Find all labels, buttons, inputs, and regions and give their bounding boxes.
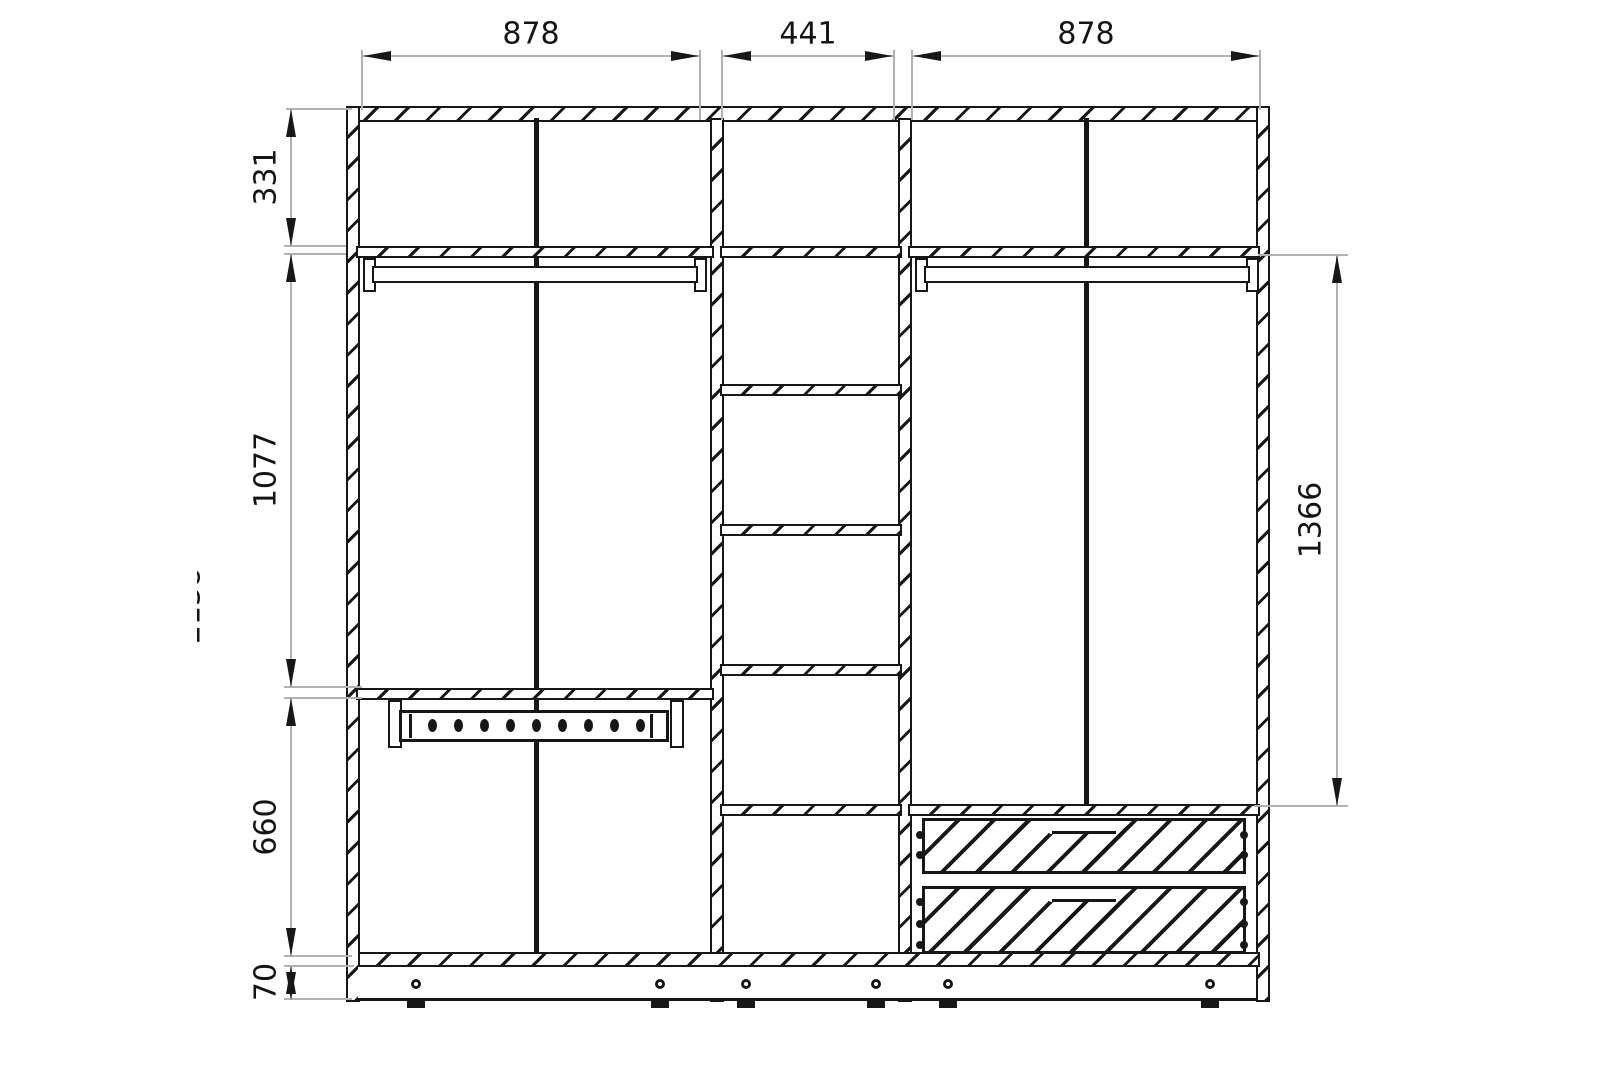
drawer-slide-screw [916,898,924,906]
drawer-slide-screw [1240,898,1248,906]
plinth-foot [1201,1000,1219,1008]
middle-shelf-5 [720,804,902,816]
dimension-line-top-right [912,55,1260,57]
right-section-drawer-top-shelf [908,804,1260,816]
bottom-panel [358,952,1260,967]
plinth-screw [871,979,881,989]
drawer-slide-screw [1240,831,1248,839]
plinth-foot [737,1000,755,1008]
dim-arrow [286,254,296,282]
plinth-screw [741,979,751,989]
dim-label-660: 660 [249,798,284,855]
trouser-rack-hole [636,719,645,732]
drawer-slide-screw [916,941,924,949]
middle-shelf-3 [720,524,902,536]
dim-arrow [723,51,751,61]
plinth-foot [651,1000,669,1008]
extension-line [893,50,895,120]
plinth-foot [939,1000,957,1008]
top-panel [346,106,1270,122]
extension-line [1259,50,1261,110]
right-clothes-rail [924,266,1250,283]
right-section-top-shelf [908,246,1260,258]
left-section-mid-shelf [356,688,714,700]
trouser-rack-hole [610,719,619,732]
middle-shelf-1 [720,246,902,258]
left-section-top-shelf [356,246,714,258]
dim-arrow [1332,778,1342,806]
plinth-screw [411,979,421,989]
dim-label-width-left: 878 [502,17,559,52]
extension-line [699,50,701,120]
trouser-rack-hole [428,719,437,732]
right-section-center-divider [1084,118,1089,806]
drawer-slide-screw [1240,920,1248,928]
plinth-screw [655,979,665,989]
trouser-rack-hole [506,719,515,732]
trouser-rack-endcap [650,714,653,738]
trouser-rack-hole [480,719,489,732]
dimension-line-1366 [1336,254,1338,807]
dimension-line-top-left [362,55,700,57]
dim-arrow [865,51,893,61]
plinth-screw [1205,979,1215,989]
dim-arrow [1231,51,1259,61]
drawer-slide-screw [916,920,924,928]
dim-label-width-right: 878 [1057,17,1114,52]
dimension-line-1077 [290,253,292,688]
drawer-1-handle-line [1052,831,1116,834]
dim-arrow [1332,255,1342,283]
middle-shelf-4 [720,664,902,676]
plinth-front [358,967,1256,1001]
middle-shelf-2 [720,384,902,396]
dim-arrow [286,928,296,956]
drawer-slide-screw [916,851,924,859]
left-clothes-rail [372,266,698,283]
dimension-line-660 [290,697,292,957]
dim-arrow [671,51,699,61]
trouser-rack-endcap [409,714,412,738]
wardrobe-technical-drawing: 878 441 878 331 1077 660 70 2138 1366 [0,0,1600,1084]
right-side-wall [1256,106,1270,1002]
plinth-foot [867,1000,885,1008]
dim-label-1366: 1366 [1294,482,1329,558]
trouser-rack-hole [584,719,593,732]
dim-arrow [286,972,296,1000]
drawer-slide-screw [916,831,924,839]
left-section-center-divider [534,118,539,952]
trouser-rack-hole [558,719,567,732]
dim-arrow [363,51,391,61]
drawer-slide-screw [1240,851,1248,859]
dim-arrow [286,109,296,137]
dim-label-width-middle: 441 [779,17,836,52]
dim-label-70: 70 [249,963,284,1001]
trouser-rack-bracket [670,700,684,748]
dim-label-1077: 1077 [249,432,284,508]
dim-arrow [286,659,296,687]
plinth-screw [943,979,953,989]
trouser-rack-hole [454,719,463,732]
left-side-wall [346,106,360,1002]
dim-label-331: 331 [249,148,284,205]
drawer-2-handle-line [1052,899,1116,902]
dim-arrow [286,218,296,246]
drawer-slide-screw [1240,941,1248,949]
crop-overlay [140,530,197,685]
plinth-foot [407,1000,425,1008]
trouser-rack-hole [532,719,541,732]
dim-arrow [913,51,941,61]
dim-arrow [286,698,296,726]
